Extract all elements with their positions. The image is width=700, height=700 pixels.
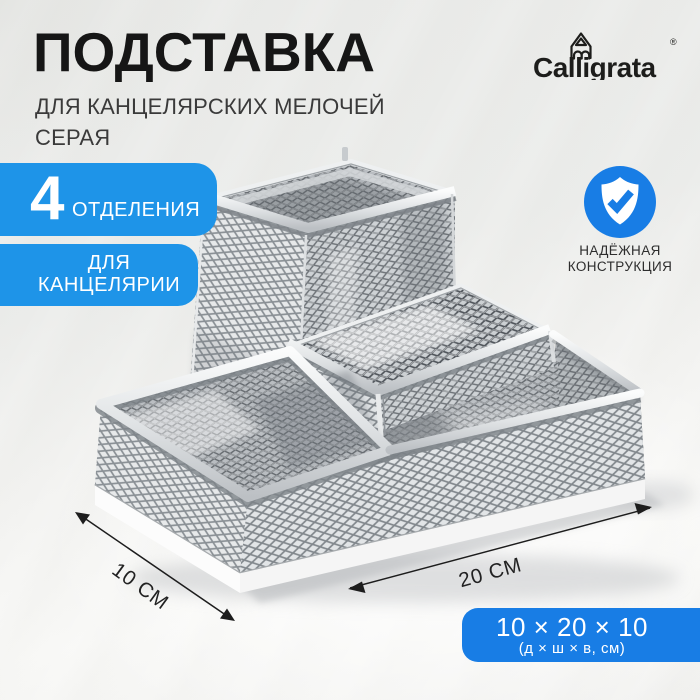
svg-text:®: ® — [670, 37, 677, 47]
svg-text:Calligrata: Calligrata — [533, 52, 657, 80]
